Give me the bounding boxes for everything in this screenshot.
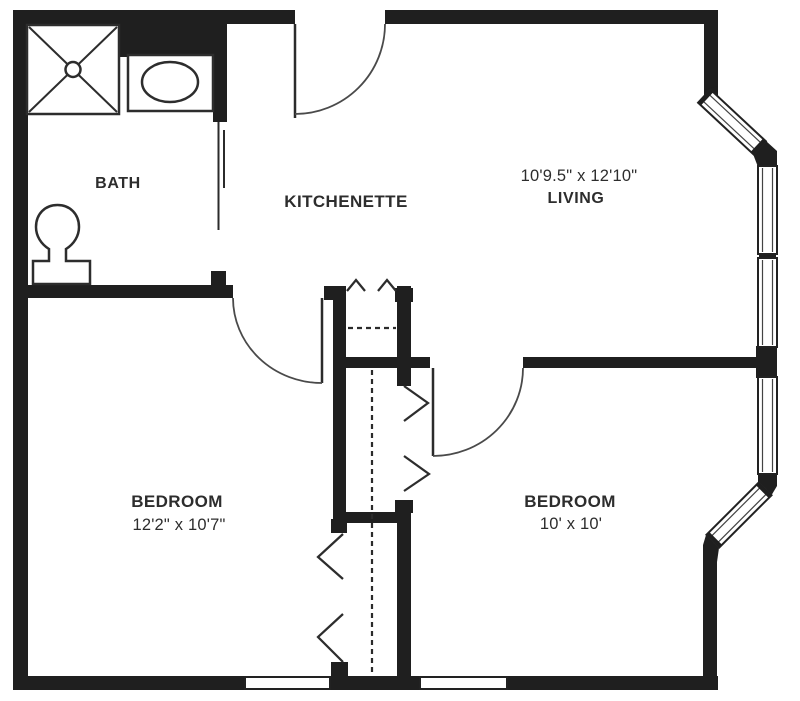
closet-bifold-left-bedroom bbox=[318, 534, 343, 662]
window-right-upper bbox=[758, 166, 777, 254]
bath-label: BATH bbox=[95, 175, 141, 192]
wall-right-top bbox=[704, 10, 718, 97]
wall-closet-left-endcap bbox=[331, 519, 347, 533]
wall-divider-right bbox=[523, 357, 760, 368]
wall-closet-right-cap bbox=[395, 500, 413, 513]
window-right-middle bbox=[758, 258, 777, 347]
closet-dashed-lines bbox=[348, 328, 396, 674]
window-bottom-left bbox=[245, 677, 330, 689]
bath-fixtures bbox=[27, 25, 213, 284]
floor-plan-canvas: BATH KITCHENETTE 10'9.5" x 12'10" LIVING… bbox=[0, 0, 800, 701]
bedroom-left-dimensions: 12'2" x 10'7" bbox=[132, 516, 225, 534]
bedroom-left-label: BEDROOM bbox=[131, 492, 223, 511]
closet-bifold-right-bedroom bbox=[404, 386, 429, 491]
wall-bath-south bbox=[13, 285, 233, 298]
bath-pocket-door bbox=[219, 122, 225, 230]
wall-divider-left bbox=[333, 357, 430, 368]
shower-icon bbox=[27, 25, 119, 114]
living-label: LIVING bbox=[548, 190, 605, 207]
sink-icon bbox=[128, 55, 213, 111]
wall-closet-left-jamb bbox=[324, 286, 346, 300]
wall-closet-right-bottom bbox=[397, 500, 411, 690]
wall-closet-left bbox=[333, 286, 346, 532]
bedroom-right-label: BEDROOM bbox=[524, 492, 616, 511]
closet-bifold-top bbox=[347, 280, 396, 291]
toilet-icon bbox=[33, 205, 90, 284]
wall-bath-bulkhead bbox=[118, 24, 227, 57]
doors bbox=[219, 24, 524, 662]
wall-right-bottom bbox=[703, 552, 717, 690]
window-bay-bottom-diagonal bbox=[706, 482, 771, 547]
wall-bottom-left bbox=[13, 676, 245, 690]
living-dimensions: 10'9.5" x 12'10" bbox=[521, 167, 638, 185]
wall-closet-right-jamb bbox=[395, 288, 413, 302]
window-bay-top-diagonal bbox=[698, 90, 766, 155]
bedroom-right-dimensions: 10' x 10' bbox=[540, 515, 602, 533]
floor-plan: BATH KITCHENETTE 10'9.5" x 12'10" LIVING… bbox=[0, 0, 800, 701]
window-right-lower bbox=[758, 377, 777, 474]
room-labels: BATH KITCHENETTE 10'9.5" x 12'10" LIVING… bbox=[95, 167, 637, 534]
wall-bottom-right bbox=[507, 676, 718, 690]
entry-door bbox=[295, 24, 385, 118]
wall-bath-door-stub-bottom bbox=[211, 271, 226, 287]
windows bbox=[245, 90, 777, 689]
wall-top-left bbox=[13, 10, 295, 24]
wall-top-right bbox=[385, 10, 718, 24]
bedroom-left-door bbox=[233, 298, 322, 383]
window-bottom-right bbox=[420, 677, 507, 689]
bedroom-right-door bbox=[433, 368, 523, 456]
kitchenette-label: KITCHENETTE bbox=[284, 192, 407, 211]
wall-closet-bottom-jamb bbox=[331, 662, 348, 680]
wall-window-junction bbox=[756, 346, 777, 378]
wall-bath-door-stub-top bbox=[213, 57, 227, 122]
